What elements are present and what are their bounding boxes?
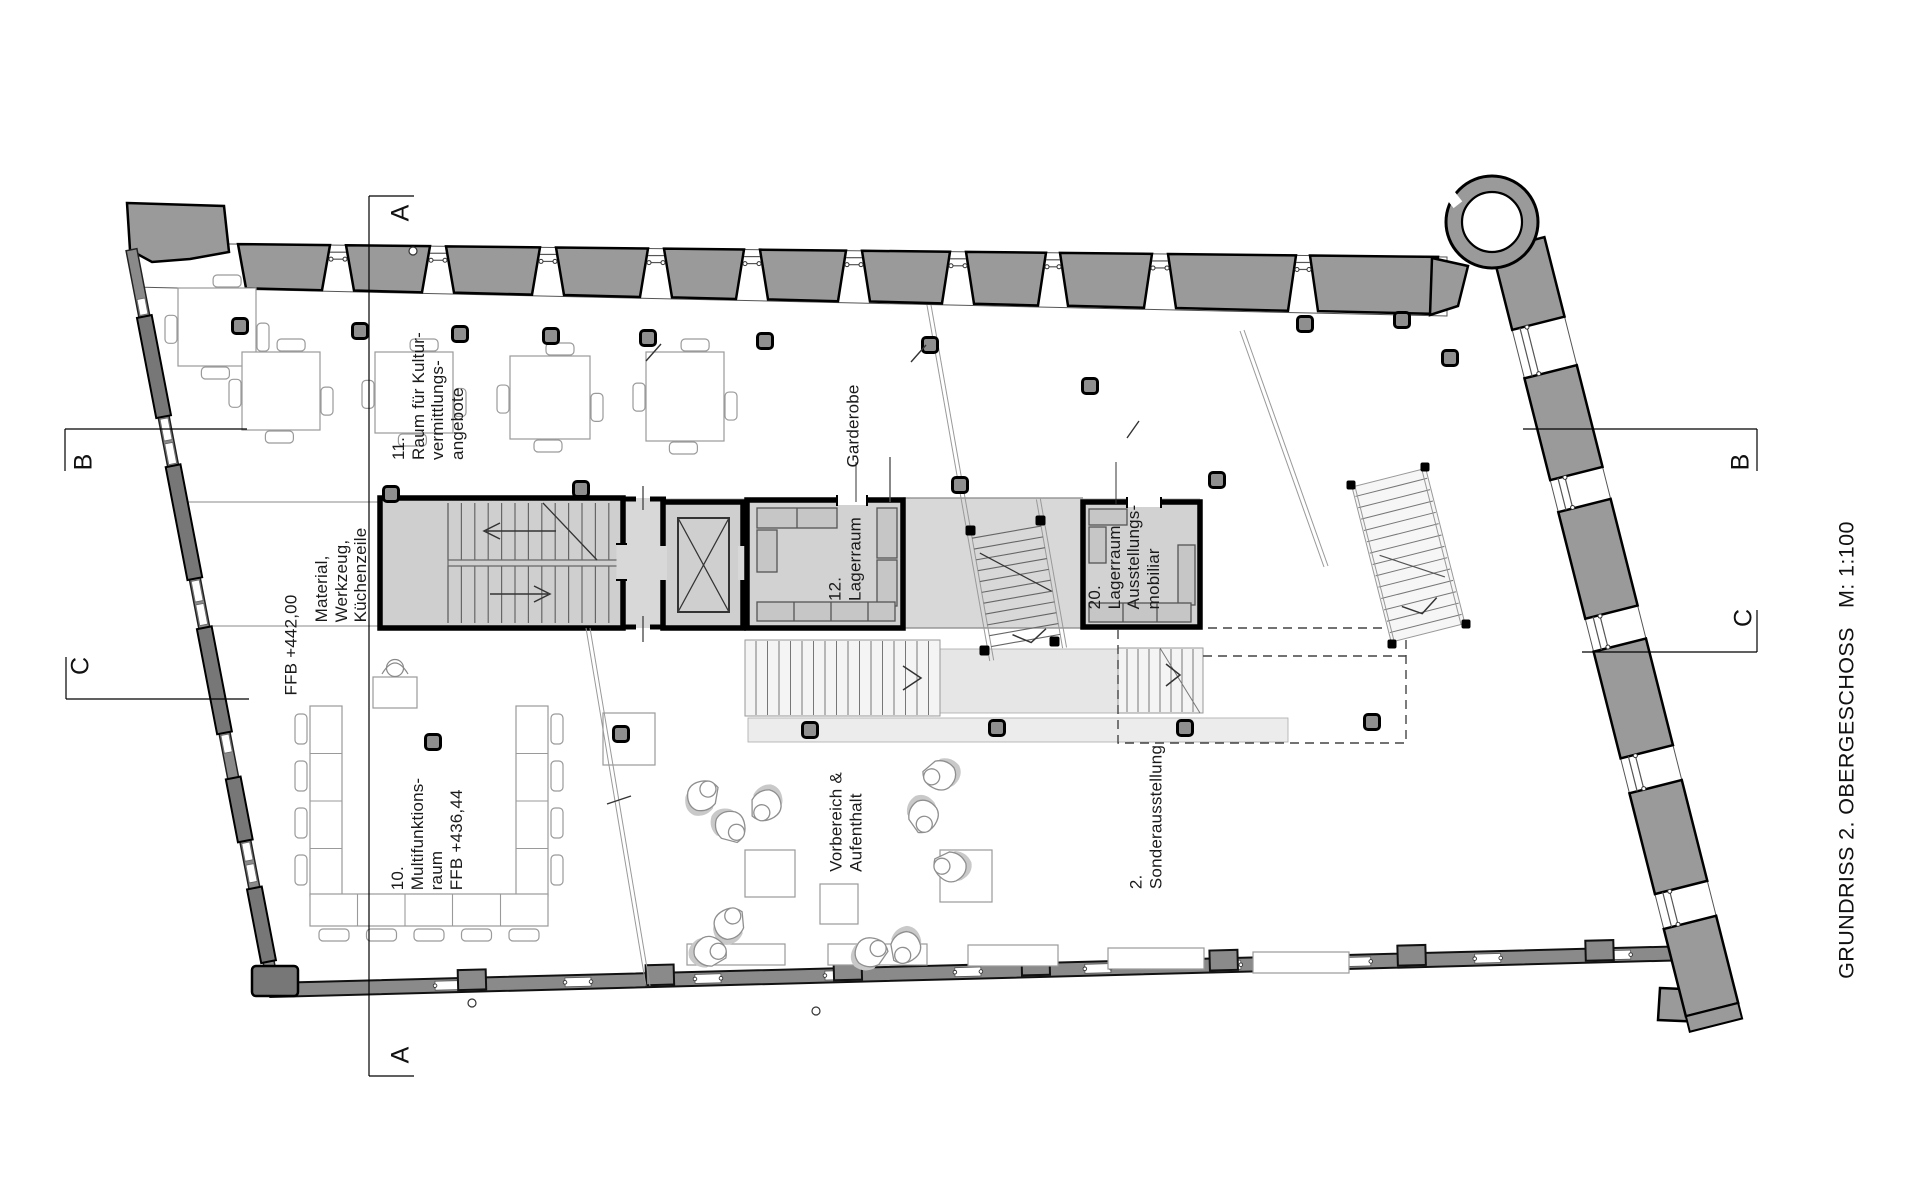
lounge-chair: [707, 804, 748, 848]
lounge-chair: [899, 790, 944, 837]
section-marker-b-right: B: [1729, 454, 1754, 471]
drawing-title: GRUNDRISS 2. OBERGESCHOSS M: 1:100: [1835, 521, 1860, 979]
east-wall: [1492, 237, 1742, 1032]
section-marker-c-left: C: [69, 657, 94, 675]
label-room-12: 12. Lagerraum: [826, 517, 865, 601]
east-stair: [1347, 463, 1470, 648]
label-kitchen: Material, Werkzeug, Küchenzeile: [312, 528, 371, 623]
section-marker-c-right: C: [1732, 609, 1757, 627]
label-garderobe: Garderobe: [843, 384, 863, 467]
label-level-ffb442: FFB +442,00: [281, 595, 301, 696]
section-marker-a-bottom: A: [389, 1047, 414, 1064]
label-room-11: 11. Raum für Kultur- vermittlungs- angeb…: [389, 332, 467, 460]
round-tower: [1443, 176, 1538, 268]
label-vorbereich: Vorbereich & Aufenthalt: [827, 772, 866, 872]
lounge-chair: [742, 780, 790, 827]
open-stair-flights: [745, 628, 1406, 743]
label-sonderausstellung: 2. Sonderausstellung: [1127, 745, 1166, 889]
section-marker-b-left: B: [72, 454, 97, 471]
section-marker-a-top: A: [389, 205, 414, 222]
label-room-10: 10. Multifunktions- raum FFB +436,44: [388, 778, 466, 891]
lounge-chair: [919, 752, 965, 796]
north-wall: [127, 203, 1468, 316]
floor-plan-page: 11. Raum für Kultur- vermittlungs- angeb…: [0, 0, 1920, 1200]
label-room-20: 20. Lagerraum Ausstellungs- mobiliar: [1085, 505, 1163, 610]
